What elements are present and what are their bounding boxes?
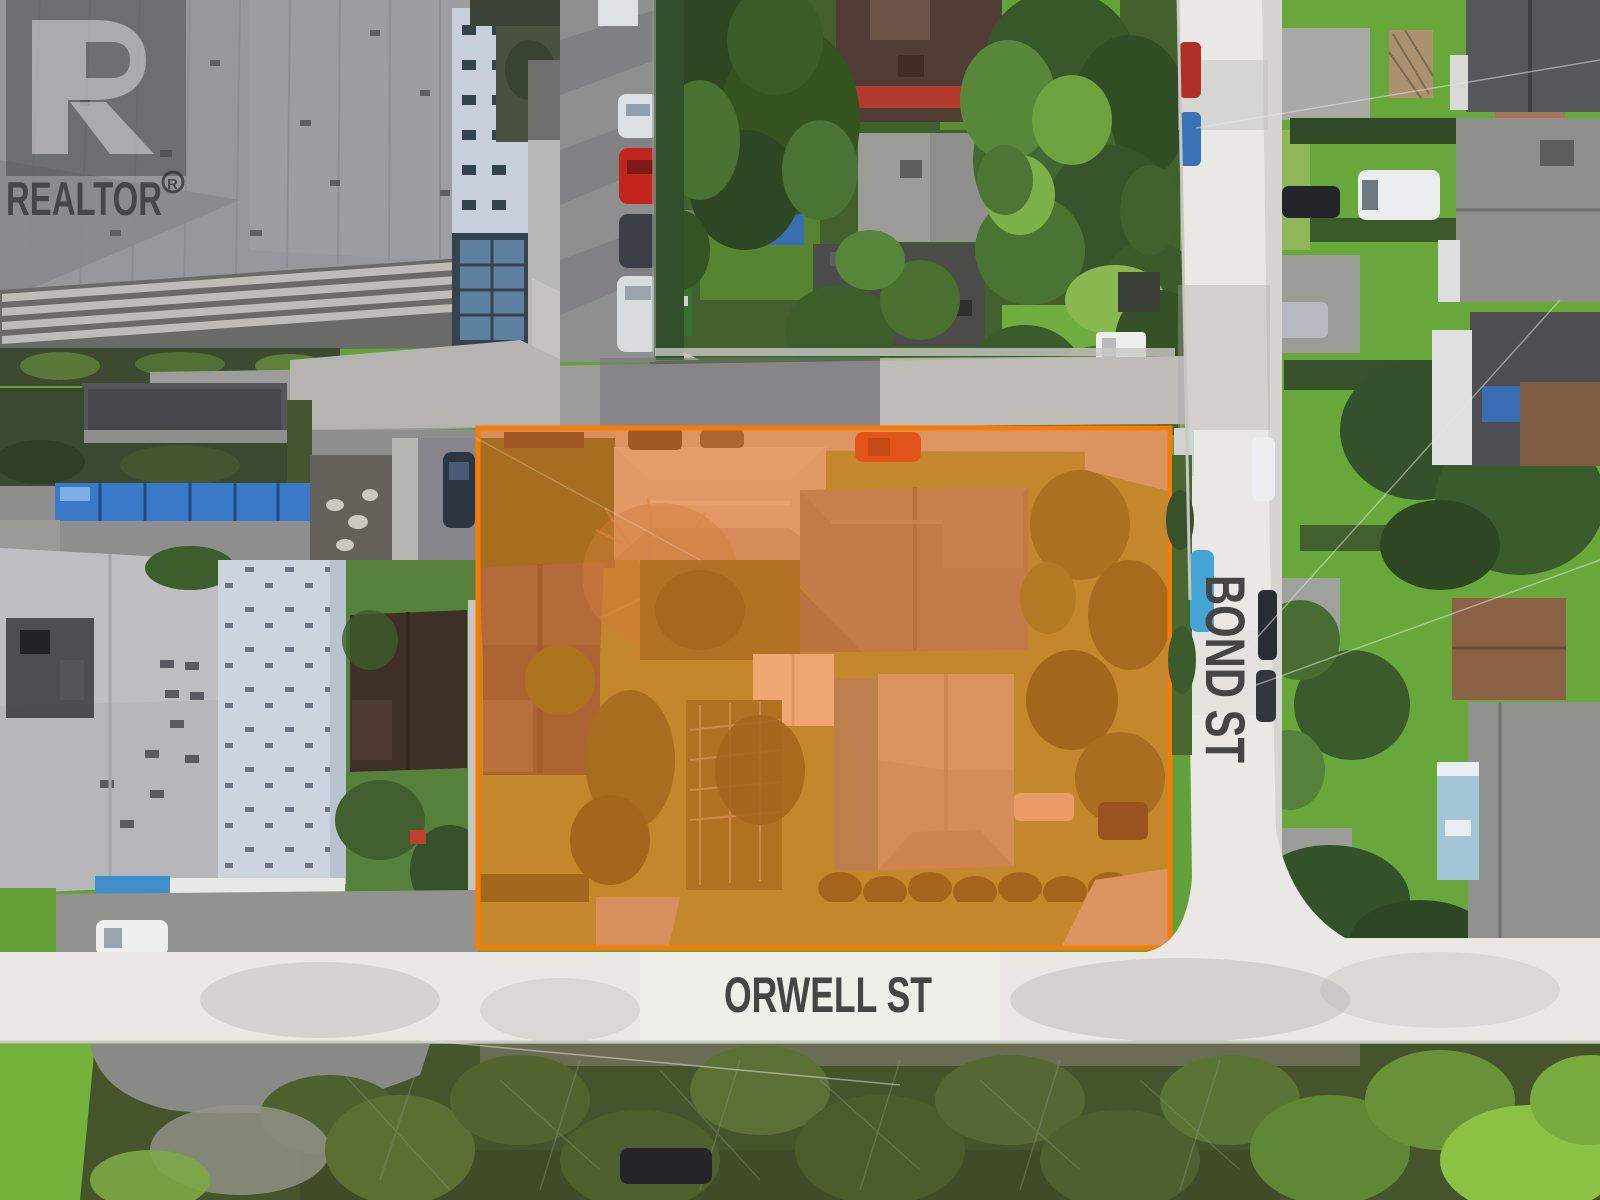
svg-text:BOND ST: BOND ST [1194,575,1257,763]
svg-text:R: R [167,176,178,193]
svg-text:REALTOR: REALTOR [6,172,162,225]
svg-text:ORWELL ST: ORWELL ST [724,967,932,1023]
